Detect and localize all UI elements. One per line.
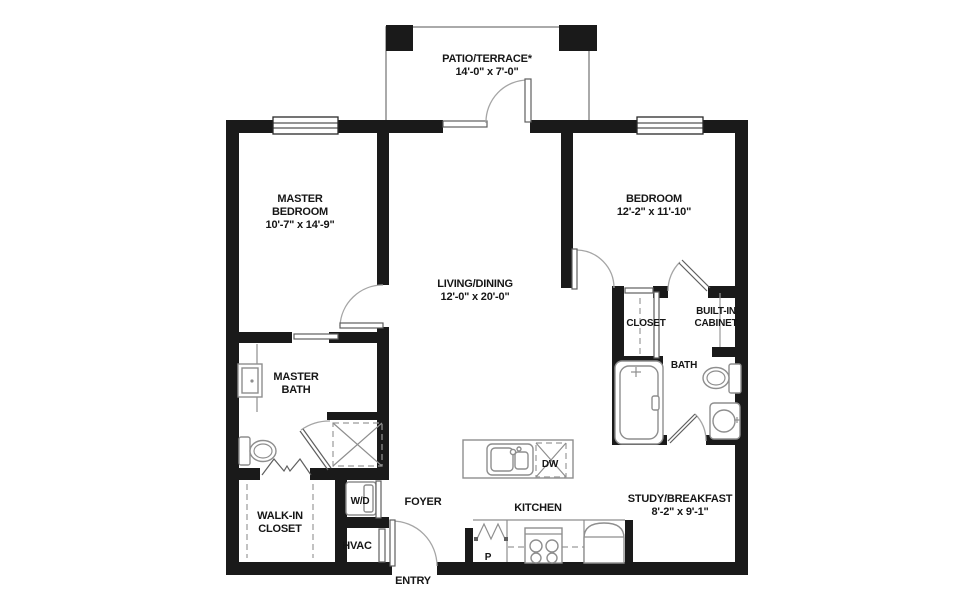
entry-door: [390, 520, 437, 566]
patio-door-leaf: [525, 79, 531, 122]
room-labels: MASTER BEDROOM 10'-7" x 14'-9" BEDROOM 1…: [257, 193, 737, 587]
closet-label: CLOSET: [626, 318, 665, 329]
bath-toilet: [703, 364, 741, 393]
master-bedroom-door: [340, 285, 383, 328]
pantry-hinge-left: [474, 537, 478, 541]
floor-plan: PATIO/TERRACE* 14'-0" x 7'-0": [0, 0, 976, 610]
pantry-hinge-right: [504, 537, 508, 541]
bifold-door: [262, 459, 311, 475]
refrigerator: [584, 523, 624, 563]
master-bedroom-label-2: BEDROOM: [272, 206, 328, 218]
shower: [333, 423, 382, 466]
laundry-label: W/D: [351, 496, 370, 507]
study-breakfast-dims: 8'-2" x 9'-1": [651, 506, 708, 518]
built-in-cabinet-label-1: BUILT-IN: [696, 306, 736, 317]
island-sink: [487, 444, 533, 475]
kitchen-label: KITCHEN: [514, 502, 562, 514]
living-dining-label: LIVING/DINING: [437, 278, 513, 290]
walk-in-closet-label-1: WALK-IN: [257, 510, 303, 522]
study-breakfast-label: STUDY/BREAKFAST: [628, 493, 733, 505]
patio-door: [443, 79, 531, 127]
patio: PATIO/TERRACE* 14'-0" x 7'-0": [386, 25, 597, 120]
bedroom-window: [637, 117, 703, 134]
bathtub: [615, 361, 663, 444]
patio-dims: 14'-0" x 7'-0": [455, 66, 518, 78]
bath-sink: [710, 403, 740, 439]
built-in-cabinet-label-2: CABINET: [694, 318, 737, 329]
shower-door: [300, 421, 331, 470]
laundry-closet-front: [376, 481, 381, 518]
master-bath-toilet: [239, 437, 276, 465]
pantry: P: [474, 524, 508, 563]
dishwasher-label: DW: [542, 459, 559, 470]
bedroom-door: [572, 249, 614, 289]
bedroom-dims: 12'-2" x 11'-10": [617, 206, 691, 218]
master-bath-label-1: MASTER: [273, 371, 319, 383]
hvac-closet-front: [379, 529, 385, 562]
hvac-label: HVAC: [342, 540, 372, 552]
master-bath-pocket-door: [294, 334, 338, 339]
vanity-drain: [250, 379, 253, 382]
master-bath-label-2: BATH: [282, 384, 311, 396]
kitchen-island: DW: [463, 440, 573, 478]
bedroom-label: BEDROOM: [626, 193, 682, 205]
patio-door-sidelite: [443, 121, 487, 127]
master-bath-vanity: [238, 344, 262, 412]
walk-in-closet-label-2: CLOSET: [258, 523, 302, 535]
patio-label: PATIO/TERRACE*: [442, 53, 533, 65]
stove: [525, 528, 562, 563]
patio-post-right: [559, 25, 597, 51]
pantry-label: P: [485, 552, 492, 563]
master-bedroom-window: [273, 117, 338, 134]
living-dining-dims: 12'-0" x 20'-0": [441, 291, 510, 303]
bath-door: [668, 414, 706, 443]
floor-plan-svg: PATIO/TERRACE* 14'-0" x 7'-0": [0, 0, 976, 610]
entry-label: ENTRY: [395, 575, 432, 587]
master-bedroom-label-1: MASTER: [277, 193, 323, 205]
patio-post-left: [386, 25, 413, 51]
foyer-label: FOYER: [405, 496, 442, 508]
master-bedroom-dims: 10'-7" x 14'-9": [266, 219, 335, 231]
bath-label: BATH: [671, 360, 697, 371]
bedroom-hall-door: [668, 260, 710, 291]
tub-ledge: [652, 396, 659, 410]
